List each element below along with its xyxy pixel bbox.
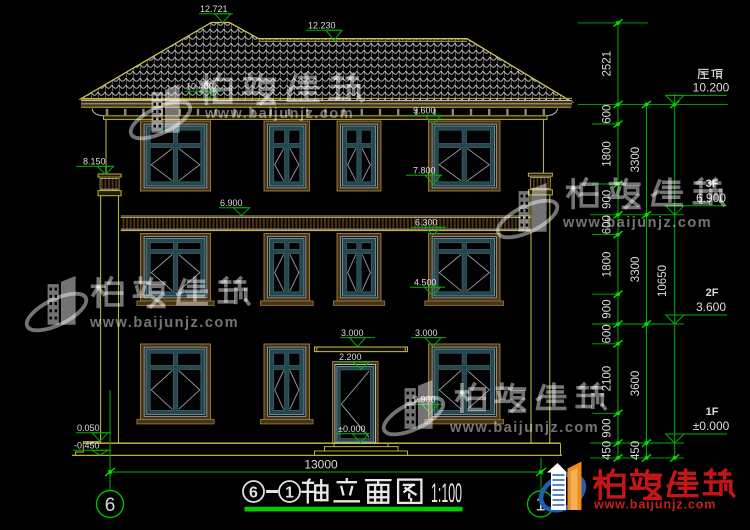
svg-text:±0.000: ±0.000 xyxy=(693,419,730,433)
svg-text:6.900: 6.900 xyxy=(220,198,243,208)
svg-text:600: 600 xyxy=(602,105,614,124)
svg-text:12.230: 12.230 xyxy=(308,21,336,31)
svg-text:600: 600 xyxy=(602,324,614,343)
svg-text:1:100: 1:100 xyxy=(431,478,462,508)
svg-text:6: 6 xyxy=(249,485,258,502)
svg-text:6.300: 6.300 xyxy=(415,217,438,227)
svg-text:450: 450 xyxy=(630,441,642,460)
svg-text:2.200: 2.200 xyxy=(339,352,362,362)
svg-text:4.500: 4.500 xyxy=(414,277,437,287)
svg-text:0.050: 0.050 xyxy=(77,423,100,433)
svg-text:10.200: 10.200 xyxy=(693,80,730,94)
svg-text:900: 900 xyxy=(602,300,614,319)
svg-text:1: 1 xyxy=(285,485,294,502)
svg-text:9.600: 9.600 xyxy=(413,106,436,116)
svg-text:900: 900 xyxy=(602,419,614,438)
svg-text:8.150: 8.150 xyxy=(83,156,106,166)
svg-text:±0.000: ±0.000 xyxy=(338,424,365,434)
svg-text:www.baijunjz.com: www.baijunjz.com xyxy=(89,315,239,331)
svg-text:450: 450 xyxy=(602,441,614,460)
svg-text:3.600: 3.600 xyxy=(696,300,726,314)
svg-text:2521: 2521 xyxy=(602,51,614,77)
svg-text:1800: 1800 xyxy=(602,141,614,167)
svg-text:1F: 1F xyxy=(706,406,719,418)
svg-text:1800: 1800 xyxy=(602,252,614,278)
svg-text:3300: 3300 xyxy=(630,257,642,283)
svg-text:7.800: 7.800 xyxy=(413,165,436,175)
svg-text:3600: 3600 xyxy=(630,371,642,397)
svg-text:3300: 3300 xyxy=(630,147,642,173)
svg-text:-0.450: -0.450 xyxy=(74,440,100,450)
svg-text:www.baijunjz.com: www.baijunjz.com xyxy=(204,106,354,122)
svg-text:13000: 13000 xyxy=(304,458,338,472)
svg-text:12.721: 12.721 xyxy=(200,4,228,14)
svg-text:2F: 2F xyxy=(706,287,719,299)
svg-text:www.baijunjz.com: www.baijunjz.com xyxy=(449,420,599,436)
svg-text:6: 6 xyxy=(105,495,116,516)
svg-text:10650: 10650 xyxy=(657,265,669,297)
svg-text:2100: 2100 xyxy=(602,366,614,392)
svg-text:3.000: 3.000 xyxy=(341,328,364,338)
svg-text:www.baijunjz.com: www.baijunjz.com xyxy=(593,498,716,512)
svg-text:www.baijunjz.com: www.baijunjz.com xyxy=(562,215,712,231)
svg-text:3.000: 3.000 xyxy=(415,328,438,338)
